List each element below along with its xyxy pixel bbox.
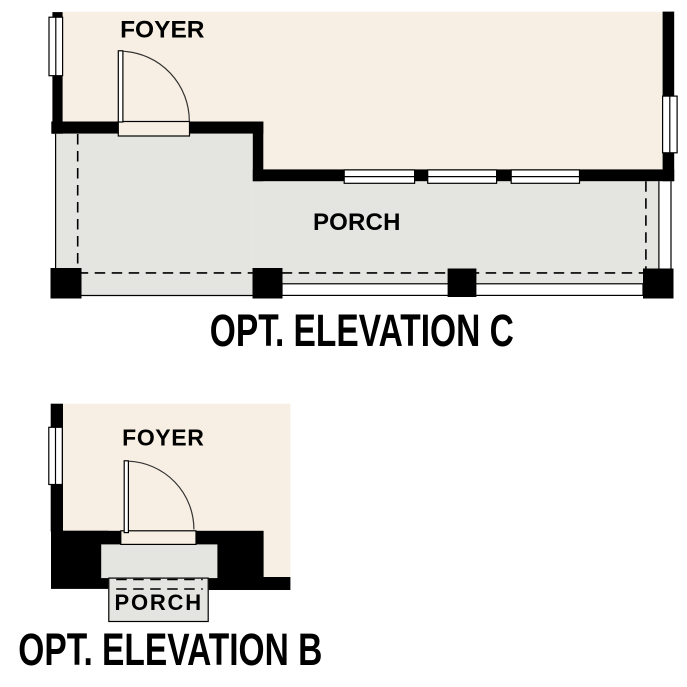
svg-text:PORCH: PORCH [313, 209, 401, 236]
svg-text:PORCH: PORCH [114, 590, 202, 615]
svg-text:FOYER: FOYER [122, 425, 204, 451]
svg-text:FOYER: FOYER [120, 17, 205, 44]
svg-text:OPT. ELEVATION B: OPT. ELEVATION B [18, 624, 322, 675]
svg-text:OPT. ELEVATION C: OPT. ELEVATION C [210, 305, 514, 356]
